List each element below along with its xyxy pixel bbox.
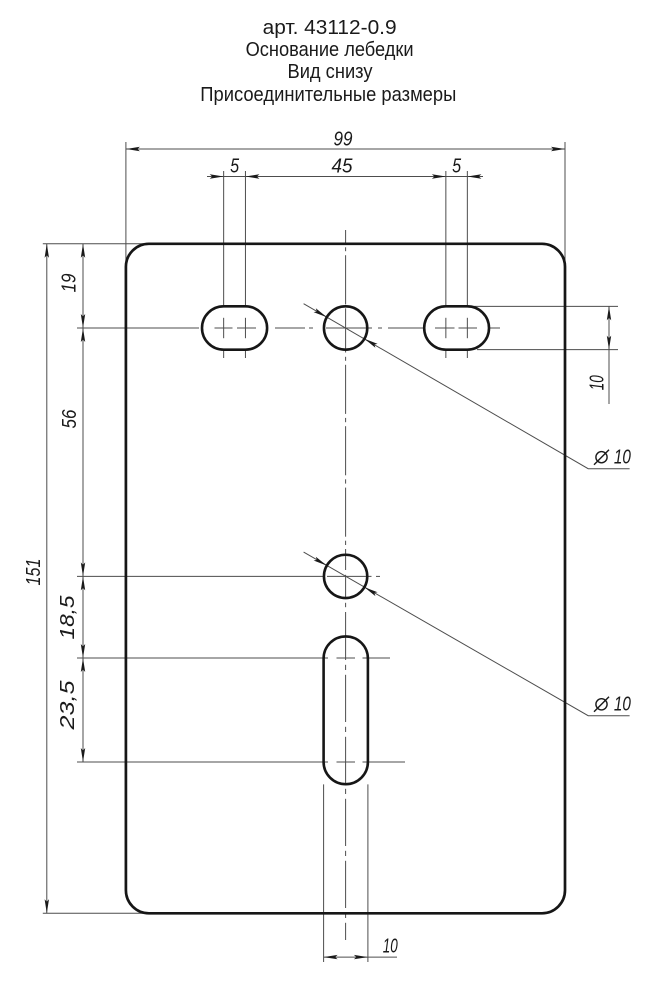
svg-text:5: 5 [230,155,240,177]
svg-text:151: 151 [23,559,45,586]
svg-text:23,5: 23,5 [57,679,79,730]
svg-text:10: 10 [587,375,609,390]
svg-text:Основание лебедки: Основание лебедки [246,39,414,61]
svg-text:99: 99 [334,129,353,151]
svg-text:10: 10 [614,693,631,715]
svg-text:18,5: 18,5 [57,595,79,640]
svg-text:Присоединительные размеры: Присоединительные размеры [200,84,456,106]
svg-text:10: 10 [614,446,631,468]
svg-text:56: 56 [59,409,81,429]
svg-text:5: 5 [452,155,462,177]
svg-text:19: 19 [59,274,81,293]
svg-text:45: 45 [332,155,354,177]
svg-text:10: 10 [383,935,398,957]
svg-text:Вид снизу: Вид снизу [288,61,373,83]
svg-text:арт. 43112-0.9: арт. 43112-0.9 [263,17,397,39]
